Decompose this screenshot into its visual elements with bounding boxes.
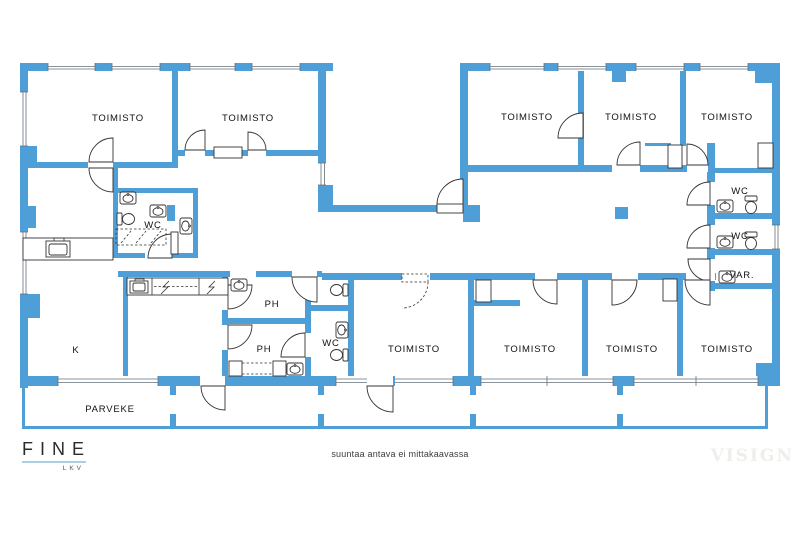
sink-icon <box>120 192 136 204</box>
room-label: PARVEKE <box>85 404 135 415</box>
toilet-icon <box>331 349 349 361</box>
room-label: TOIMISTO <box>501 112 553 123</box>
room-label: K <box>72 345 79 356</box>
sink-icon <box>336 322 348 338</box>
room-label: WC <box>731 231 748 242</box>
room-label: TOIMISTO <box>605 112 657 123</box>
brand-subtitle: LKV <box>22 465 84 472</box>
room-label: WC <box>731 186 748 197</box>
toilet-icon <box>745 196 757 214</box>
doors <box>89 113 773 412</box>
room-label: WC <box>144 220 161 231</box>
toilet-icon <box>331 284 349 296</box>
room-label: PH <box>265 299 280 310</box>
sink-icon <box>150 205 166 217</box>
kitchenette-counter <box>127 278 228 295</box>
room-label: TOIMISTO <box>222 113 274 124</box>
sink-icon <box>231 279 247 291</box>
sink-icon <box>287 363 303 375</box>
room-label: WC <box>322 338 339 349</box>
counter-sink <box>23 238 113 260</box>
room-label: TOIMISTO <box>701 344 753 355</box>
scale-disclaimer: suuntaa antava ei mittakaavassa <box>0 449 800 459</box>
visign-watermark: VISIGN <box>711 446 794 466</box>
room-label: TOIMISTO <box>388 344 440 355</box>
sauna-bench <box>229 361 286 376</box>
floor-plan-page: TOIMISTO TOIMISTO TOIMISTO TOIMISTO TOIM… <box>0 0 800 533</box>
sink-icon <box>717 200 733 212</box>
room-label: TOIMISTO <box>92 113 144 124</box>
walls <box>20 63 780 388</box>
windows <box>20 63 780 386</box>
room-label: TOIMISTO <box>606 344 658 355</box>
room-label: VAR. <box>730 270 755 281</box>
toilet-icon <box>117 213 135 225</box>
room-label: TOIMISTO <box>701 112 753 123</box>
brand-rule <box>22 461 86 463</box>
room-label: TOIMISTO <box>504 344 556 355</box>
room-label: PH <box>257 344 272 355</box>
sink-icon <box>180 218 192 234</box>
